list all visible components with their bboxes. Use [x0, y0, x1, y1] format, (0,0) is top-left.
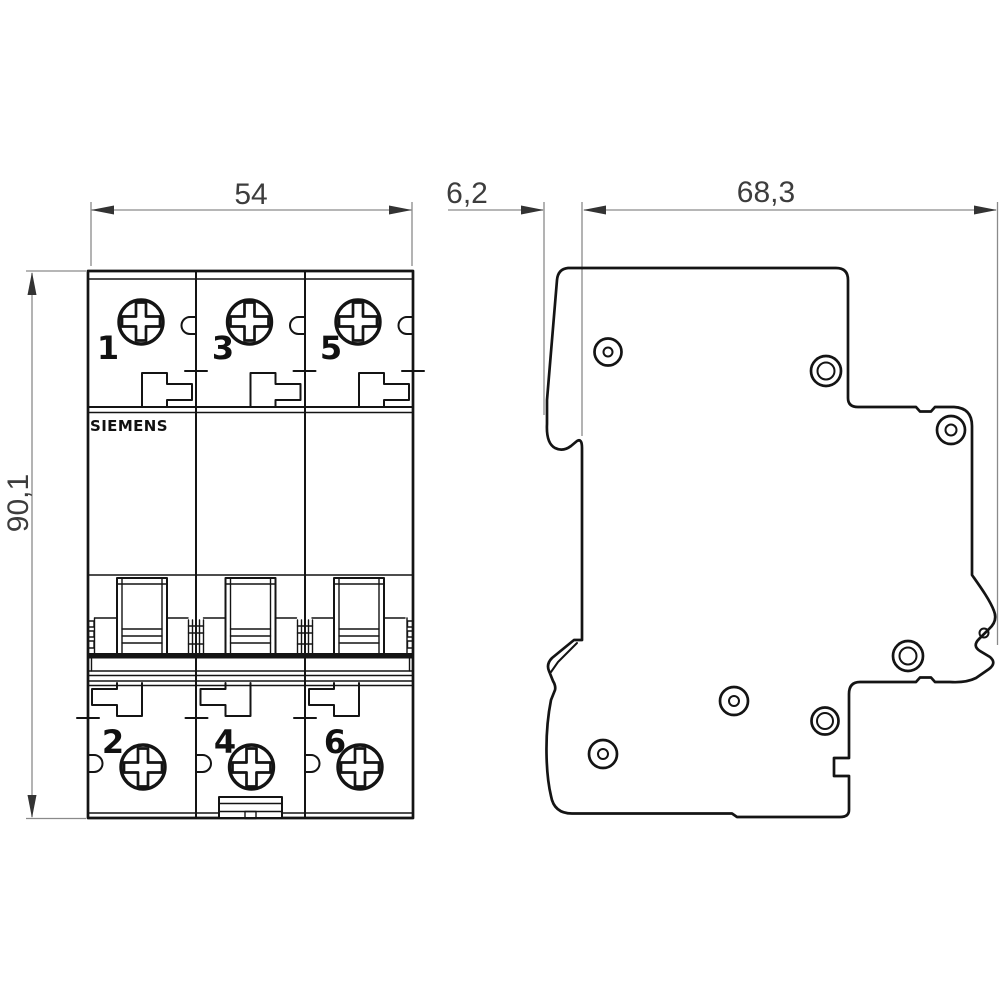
dimension-label-width: 54	[234, 178, 267, 211]
front-view: 1 3 5 SIEMENS 2 4 6	[77, 271, 424, 819]
dimension-side-front-depth: 6,2	[446, 177, 544, 215]
terminal-module	[119, 300, 207, 406]
label-plate	[219, 797, 282, 819]
dimension-label-body-depth: 68,3	[737, 176, 795, 209]
terminal-number-6: 6	[324, 723, 346, 761]
top-terminal-modules	[119, 300, 424, 406]
side-housing-outline	[546, 268, 995, 817]
dimension-front-width: 54	[91, 178, 412, 266]
brand-logo: SIEMENS	[90, 417, 168, 435]
toggle-handle	[204, 578, 297, 654]
front-housing-outline	[88, 271, 413, 818]
rivets	[589, 339, 965, 769]
terminal-number-2: 2	[102, 723, 124, 761]
side-view	[546, 268, 995, 817]
terminal-number-1: 1	[97, 329, 119, 367]
recess-edge-strip	[89, 618, 95, 653]
toggle-tie-bar	[88, 653, 413, 659]
dimension-front-height: 90,1	[2, 271, 86, 819]
technical-drawing-page: 54 6,2 68,3 90,1 1 3 5	[0, 0, 1000, 1000]
terminal-module	[336, 300, 424, 406]
dimension-label-height: 90,1	[2, 474, 35, 532]
dimension-label-front-depth: 6,2	[446, 177, 488, 210]
terminal-number-5: 5	[320, 329, 342, 367]
technical-drawing-canvas: 54 6,2 68,3 90,1 1 3 5	[0, 0, 1000, 1000]
terminal-number-3: 3	[212, 329, 234, 367]
terminal-module	[228, 300, 316, 406]
toggle-area	[88, 575, 413, 686]
toggle-handle	[95, 578, 188, 654]
terminal-number-4: 4	[214, 723, 236, 761]
toggle-handle	[312, 578, 405, 654]
